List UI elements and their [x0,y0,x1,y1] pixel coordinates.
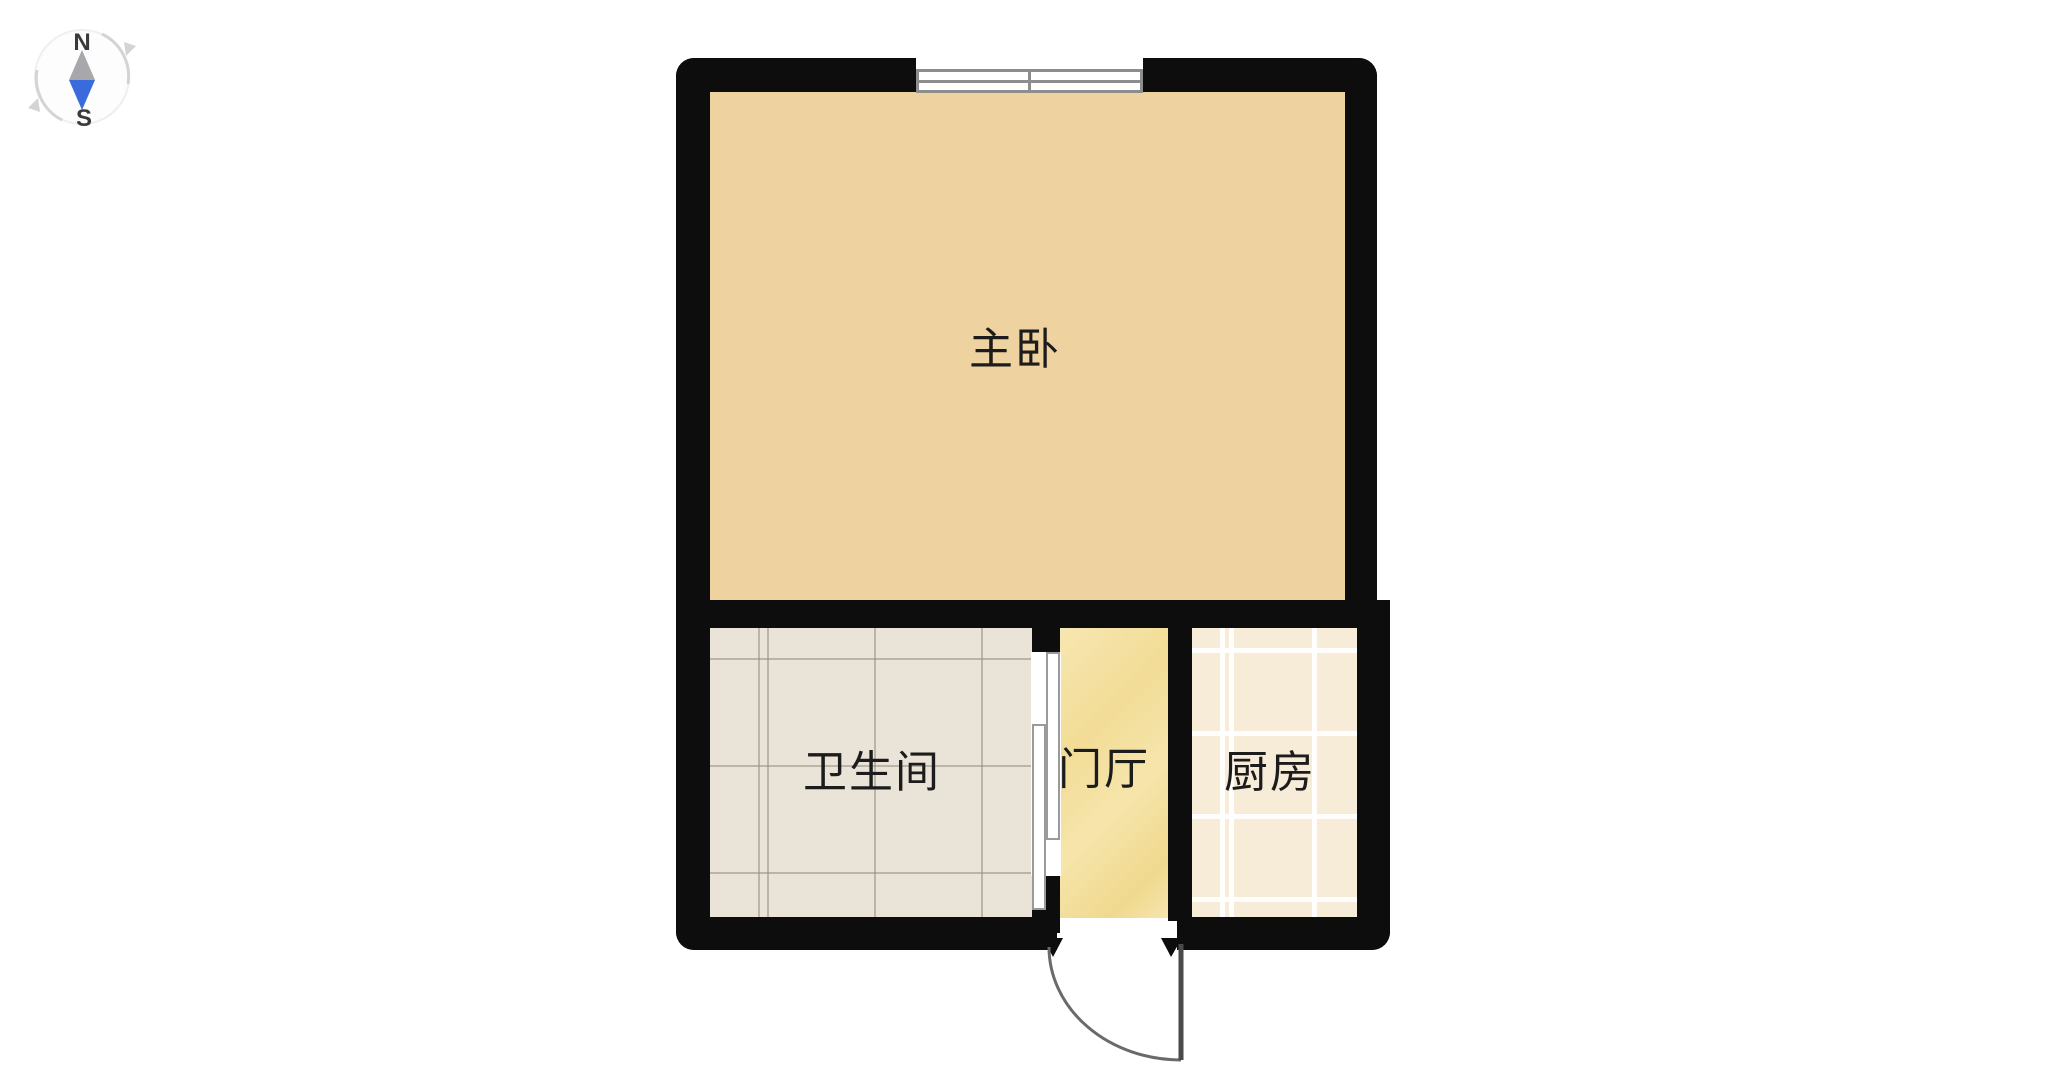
compass-needle-north [69,50,95,80]
window-mullion-vertical [1028,72,1031,90]
compass-south-label: S [76,105,92,132]
entry-door-swing-arc [1049,947,1181,1060]
wall-bedroom-right [1345,58,1377,628]
room-label-bathroom: 卫生间 [803,736,941,800]
compass-arc-left [36,70,62,120]
wall-lower-right [1357,600,1390,950]
wall-middle-horizontal [700,600,1390,628]
wall-top-left-segment [676,58,916,92]
compass-north-label: N [73,29,90,56]
compass-arc-right [102,34,129,84]
floor-plan-canvas: N S 主卧 卫生间 门厅 厨房 [0,0,2062,1086]
room-label-entry-hall: 门厅 [1058,733,1150,797]
wall-hall-kitchen [1168,626,1192,921]
wall-bottom-bathroom [676,917,1057,950]
compass-arrowhead-sw [28,98,40,112]
bedroom-window [916,69,1143,93]
wall-bottom-kitchen [1177,917,1390,950]
compass: N S [24,14,154,144]
compass-needle-south [69,80,95,110]
room-label-kitchen: 厨房 [1224,736,1316,800]
bathroom-sliding-door-panel-left [1032,724,1046,910]
wall-left [676,58,710,950]
wall-top-right-segment [1143,58,1377,92]
compass-circle [35,30,129,124]
compass-arrowhead-ne [124,42,136,56]
room-label-master-bedroom: 主卧 [969,313,1061,377]
